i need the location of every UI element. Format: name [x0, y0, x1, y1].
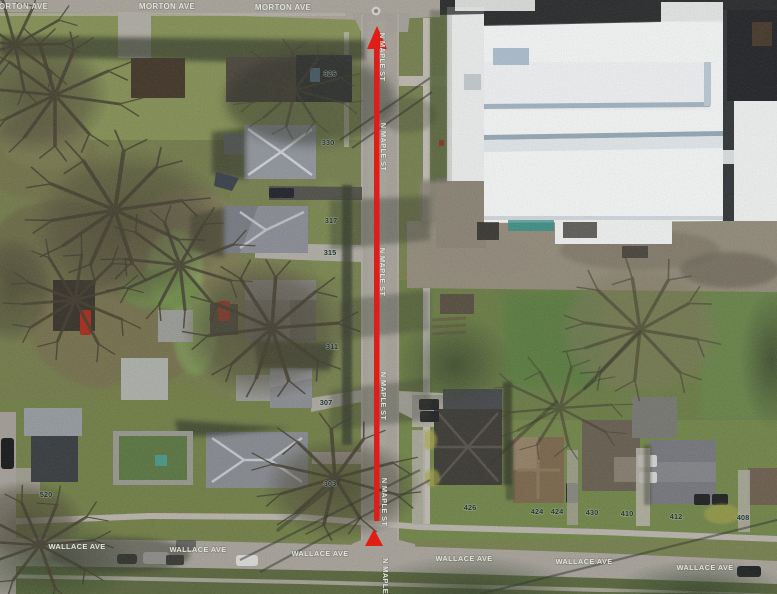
svg-text:MORTON AVE: MORTON AVE	[139, 2, 196, 11]
svg-text:315: 315	[324, 248, 337, 257]
svg-text:424: 424	[531, 507, 544, 516]
svg-text:MORTON AVE: MORTON AVE	[0, 2, 48, 11]
svg-text:410: 410	[621, 509, 634, 518]
svg-text:WALLACE AVE: WALLACE AVE	[169, 545, 226, 554]
svg-text:426: 426	[464, 503, 477, 512]
svg-text:WALLACE AVE: WALLACE AVE	[48, 542, 105, 551]
svg-text:408: 408	[737, 513, 750, 522]
svg-text:N MAPLE ST: N MAPLE ST	[379, 123, 388, 172]
svg-text:N MAPLE ST: N MAPLE ST	[380, 478, 389, 527]
svg-text:WALLACE AVE: WALLACE AVE	[435, 554, 492, 563]
svg-text:N MAPLE ST: N MAPLE ST	[378, 248, 387, 297]
svg-text:412: 412	[670, 512, 683, 521]
svg-text:430: 430	[586, 508, 599, 517]
svg-text:520: 520	[40, 490, 53, 499]
svg-text:303: 303	[324, 479, 337, 488]
svg-text:MORTON AVE: MORTON AVE	[255, 3, 312, 12]
svg-text:326: 326	[324, 69, 337, 78]
svg-text:N MAPLE ST: N MAPLE ST	[378, 33, 387, 82]
svg-text:424: 424	[551, 507, 564, 516]
svg-text:N MAPLE ST: N MAPLE ST	[379, 372, 388, 421]
svg-text:317: 317	[325, 216, 338, 225]
svg-text:307: 307	[320, 398, 333, 407]
svg-text:311: 311	[326, 342, 338, 351]
svg-text:WALLACE AVE: WALLACE AVE	[676, 563, 733, 572]
svg-text:WALLACE AVE: WALLACE AVE	[291, 549, 348, 558]
svg-text:N MAPLE: N MAPLE	[381, 558, 390, 594]
svg-text:WALLACE AVE: WALLACE AVE	[555, 557, 612, 566]
svg-text:330: 330	[322, 138, 335, 147]
